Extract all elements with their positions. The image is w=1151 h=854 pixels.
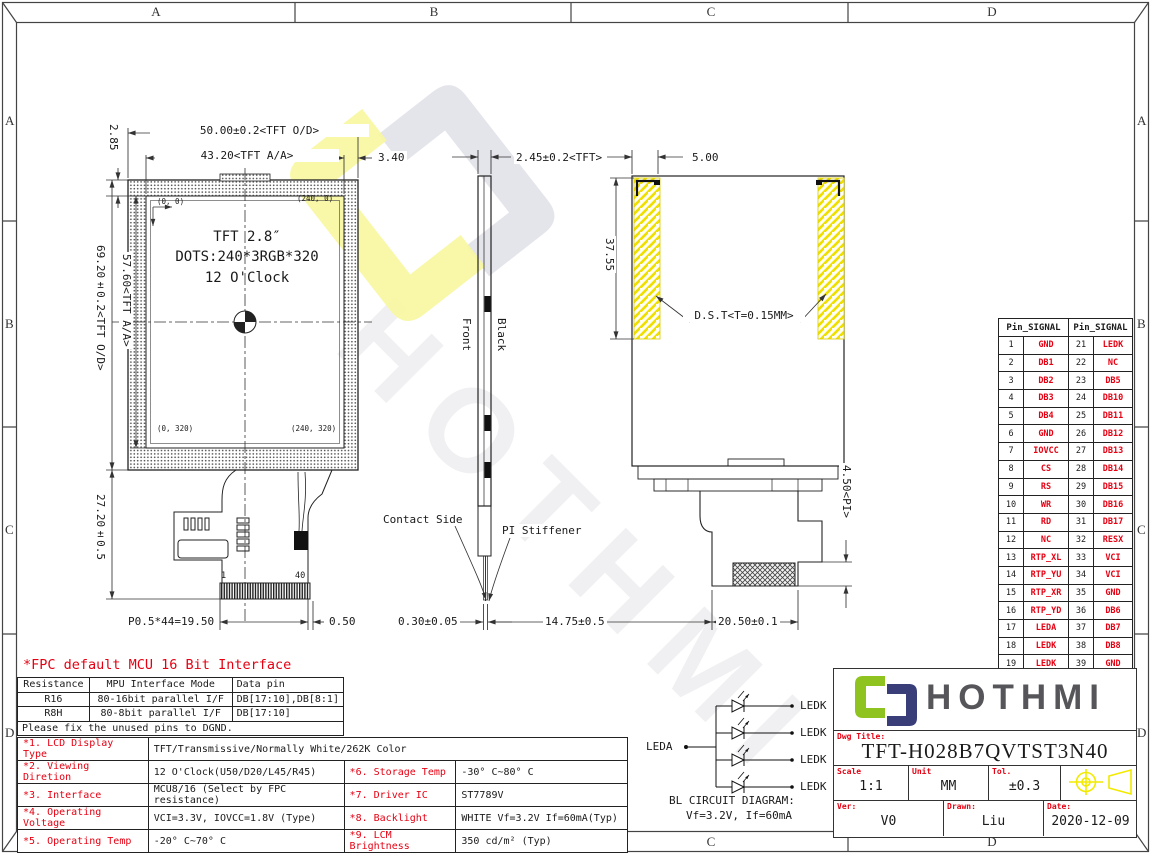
- date-value: 2020-12-09: [1044, 814, 1137, 829]
- pin-number-cell: 26: [1069, 425, 1094, 443]
- dim-aa-height: 57.60<TFT A/A>: [119, 252, 133, 349]
- label-leda: LEDA: [644, 740, 675, 753]
- zone-top-b: B: [404, 4, 464, 20]
- pin-signal-cell: NC: [1094, 354, 1133, 372]
- title-block: HOTHMI Dwg Title: TFT-H028B7QVTST3N40 Sc…: [833, 668, 1137, 838]
- panel-dots-text: DOTS:240*3RGB*320: [167, 249, 327, 265]
- dim-tape-width: 5.00: [690, 151, 721, 164]
- label-ledk-1: LEDK: [798, 699, 829, 712]
- resistance-table-row: R1680-16bit parallel I/FDB[17:10],DB[8:1…: [18, 692, 344, 707]
- label-contact-side: Contact Side: [381, 513, 464, 526]
- zone-right-c: C: [1137, 522, 1146, 538]
- pin-signal-cell: GND: [1024, 425, 1069, 443]
- zone-left-c: C: [5, 522, 14, 538]
- dwg-title: TFT-H028B7QVTST3N40: [834, 739, 1136, 764]
- spec-label-cell: *8. Backlight: [344, 807, 456, 830]
- resistance-cell: 80-8bit parallel I/F: [89, 707, 232, 722]
- pin-number-cell: 22: [1069, 354, 1094, 372]
- label-black-side: Black: [494, 316, 508, 353]
- dim-od-height: 69.20±0.2<TFT O/D>: [93, 243, 107, 373]
- spec-value-cell: WHITE Vf=3.2V If=60mA(Typ): [456, 807, 628, 830]
- label-ledk-4: LEDK: [798, 780, 829, 793]
- resistance-table: Resistance MPU Interface Mode Data pin R…: [17, 677, 344, 736]
- spec-table-row: *5. Operating Temp-20° C~70° C*9. LCM Br…: [18, 830, 628, 853]
- pin-table-row: 5DB425DB11: [999, 407, 1133, 425]
- spec-label-1: *1. LCD Display Type: [18, 738, 149, 761]
- pin-signal-cell: DB10: [1094, 390, 1133, 408]
- coord-top-right: (240, 0): [296, 194, 334, 203]
- pin-table-row: 9RS29DB15: [999, 478, 1133, 496]
- drawn-label: Drawn:: [947, 802, 976, 811]
- pin-table-row: 2DB122NC: [999, 354, 1133, 372]
- resistance-cell: R8H: [18, 707, 90, 722]
- spec-value-cell: 350 cd/m² (Typ): [456, 830, 628, 853]
- title-block-title-row: Dwg Title: TFT-H028B7QVTST3N40: [834, 730, 1136, 765]
- pin-signal-cell: CS: [1024, 460, 1069, 478]
- pin-table-row: 12NC32RESX: [999, 531, 1133, 549]
- pin-number-cell: 16: [999, 602, 1024, 620]
- pin-signal-cell: NC: [1024, 531, 1069, 549]
- resistance-cell: 80-16bit parallel I/F: [89, 692, 232, 707]
- pin-first-label: 1: [220, 571, 227, 581]
- brand-name: HOTHMI: [926, 678, 1106, 718]
- pin-table-row: 17LEDA37DB7: [999, 620, 1133, 638]
- spec-label-cell: *3. Interface: [18, 784, 149, 807]
- label-front-side: Front: [459, 316, 473, 353]
- spec-value-cell: MCU8/16 (Select by FPC resistance): [148, 784, 344, 807]
- pin-number-cell: 30: [1069, 496, 1094, 514]
- drawn-value: Liu: [944, 814, 1043, 829]
- pin-signal-cell: VCI: [1094, 549, 1133, 567]
- zone-right-b: B: [1137, 316, 1146, 332]
- zone-top-c: C: [681, 4, 741, 20]
- pin-number-cell: 9: [999, 478, 1024, 496]
- pin-number-cell: 13: [999, 549, 1024, 567]
- dim-fpc-thickness: 0.30±0.05: [396, 615, 460, 628]
- pin-table-row: 18LEDK38DB8: [999, 637, 1133, 655]
- pin-signal-cell: WR: [1024, 496, 1069, 514]
- bl-circuit-caption: BL CIRCUIT DIAGRAM:: [667, 794, 797, 807]
- panel-clock-text: 12 O'Clock: [175, 270, 319, 286]
- spec-value-cell: ST7789V: [456, 784, 628, 807]
- pin-signal-cell: DB2: [1024, 372, 1069, 390]
- pin-number-cell: 5: [999, 407, 1024, 425]
- date-cell: Date: 2020-12-09: [1044, 801, 1137, 836]
- pin-signal-cell: DB7: [1094, 620, 1133, 638]
- resistance-table-row: R8H80-8bit parallel I/FDB[17:10]: [18, 707, 344, 722]
- spec-label-cell: *4. Operating Voltage: [18, 807, 149, 830]
- spec-value-cell: 12 O'Clock(U50/D20/L45/R45): [148, 761, 344, 784]
- pin-number-cell: 32: [1069, 531, 1094, 549]
- pin-signal-cell: DB1: [1024, 354, 1069, 372]
- spec-table-row: *4. Operating VoltageVCI=3.3V, IOVCC=1.8…: [18, 807, 628, 830]
- pin-number-cell: 12: [999, 531, 1024, 549]
- spec-label-cell: *5. Operating Temp: [18, 830, 149, 853]
- pin-last-label: 40: [294, 571, 306, 581]
- pin-number-cell: 2: [999, 354, 1024, 372]
- dim-od-width: 50.00±0.2<TFT O/D>: [150, 124, 369, 137]
- pin-table-row: 10WR30DB16: [999, 496, 1133, 514]
- pin-table-row: 6GND26DB12: [999, 425, 1133, 443]
- pin-number-cell: 24: [1069, 390, 1094, 408]
- label-pi-stiffener: PI Stiffener: [500, 524, 583, 537]
- res-header-datapin: Data pin: [232, 678, 343, 693]
- pin-signal-cell: LEDA: [1024, 620, 1069, 638]
- pin-table-row: 14RTP_YU34VCI: [999, 566, 1133, 584]
- version-cell: Ver: V0: [834, 801, 944, 836]
- spec-table-row: *3. InterfaceMCU8/16 (Select by FPC resi…: [18, 784, 628, 807]
- unit-value: MM: [909, 779, 988, 794]
- pin-table-row: 1GND21LEDK: [999, 337, 1133, 355]
- pin-signal-cell: DB15: [1094, 478, 1133, 496]
- res-header-resistance: Resistance: [18, 678, 90, 693]
- pin-number-cell: 15: [999, 584, 1024, 602]
- pin-table-header-left: Pin_SIGNAL: [999, 319, 1069, 337]
- dim-tft-thickness: 2.45±0.2<TFT>: [514, 151, 604, 164]
- pin-signal-cell: RTP_YU: [1024, 566, 1069, 584]
- pin-signal-cell: DB3: [1024, 390, 1069, 408]
- unit-label: Unit: [912, 767, 931, 776]
- pin-signal-cell: RTP_YD: [1024, 602, 1069, 620]
- spec-label-cell: *2. Viewing Diretion: [18, 761, 149, 784]
- pin-table-row: 8CS28DB14: [999, 460, 1133, 478]
- label-dst-tape: D.S.T<T=0.15MM>: [683, 309, 805, 322]
- scale-cell: Scale 1:1: [834, 766, 909, 800]
- resistance-cell: R16: [18, 692, 90, 707]
- panel-size-text: TFT 2.8″: [175, 229, 319, 245]
- zone-bottom-c: C: [681, 834, 741, 850]
- fpc-interface-note: *FPC default MCU 16 Bit Interface: [21, 657, 293, 673]
- pin-number-cell: 25: [1069, 407, 1094, 425]
- pin-number-cell: 7: [999, 443, 1024, 461]
- pin-table-header-right: Pin_SIGNAL: [1069, 319, 1133, 337]
- pin-number-cell: 6: [999, 425, 1024, 443]
- drawing-sheet: HOTHMI: [0, 0, 1151, 854]
- label-ledk-2: LEDK: [798, 726, 829, 739]
- pin-number-cell: 33: [1069, 549, 1094, 567]
- resistance-table-note: Please fix the unused pins to DGND.: [18, 721, 344, 736]
- pin-table: Pin_SIGNAL Pin_SIGNAL 1GND21LEDK2DB122NC…: [998, 318, 1133, 691]
- spec-label-cell: *9. LCM Brightness: [344, 830, 456, 853]
- bl-circuit-spec: Vf=3.2V, If=60mA: [684, 809, 794, 822]
- version-label: Ver:: [837, 802, 856, 811]
- pin-signal-cell: DB16: [1094, 496, 1133, 514]
- pin-number-cell: 37: [1069, 620, 1094, 638]
- pin-signal-cell: DB14: [1094, 460, 1133, 478]
- pin-table-row: 3DB223DB5: [999, 372, 1133, 390]
- coord-bottom-left: (0, 320): [156, 424, 194, 433]
- date-label: Date:: [1047, 802, 1071, 811]
- zone-top-a: A: [126, 4, 186, 20]
- pin-signal-cell: DB8: [1094, 637, 1133, 655]
- spec-value-cell: -30° C~80° C: [456, 761, 628, 784]
- pin-signal-cell: DB17: [1094, 513, 1133, 531]
- pin-number-cell: 4: [999, 390, 1024, 408]
- pin-table-body: 1GND21LEDK2DB122NC3DB223DB54DB324DB105DB…: [999, 337, 1133, 691]
- pin-table-row: 13RTP_XL33VCI: [999, 549, 1133, 567]
- spec-value-1: TFT/Transmissive/Normally White/262K Col…: [148, 738, 627, 761]
- pin-number-cell: 35: [1069, 584, 1094, 602]
- pin-number-cell: 38: [1069, 637, 1094, 655]
- dim-pin-pitch: P0.5*44=19.50: [126, 615, 216, 628]
- pin-signal-cell: RTP_XR: [1024, 584, 1069, 602]
- pin-signal-cell: GND: [1024, 337, 1069, 355]
- pin-signal-cell: DB12: [1094, 425, 1133, 443]
- pin-signal-cell: LEDK: [1094, 337, 1133, 355]
- bl-circuit-drawing: [684, 691, 794, 793]
- spec-table-row: *2. Viewing Diretion12 O'Clock(U50/D20/L…: [18, 761, 628, 784]
- pin-number-cell: 29: [1069, 478, 1094, 496]
- unit-cell: Unit MM: [909, 766, 989, 800]
- pin-number-cell: 23: [1069, 372, 1094, 390]
- resistance-cell: DB[17:10],DB[8:1]: [232, 692, 343, 707]
- spec-value-cell: -20° C~70° C: [148, 830, 344, 853]
- projection-symbol-cell: [1061, 766, 1137, 800]
- coord-bottom-right: (240, 320): [290, 424, 337, 433]
- dim-pi-region: 4.50<PI>: [839, 463, 853, 520]
- pin-number-cell: 10: [999, 496, 1024, 514]
- pin-signal-cell: DB11: [1094, 407, 1133, 425]
- pin-signal-cell: VCI: [1094, 566, 1133, 584]
- pin-table-row: 4DB324DB10: [999, 390, 1133, 408]
- scale-value: 1:1: [834, 779, 908, 794]
- spec-table: *1. LCD Display Type TFT/Transmissive/No…: [17, 737, 628, 853]
- pin-table-row: 7IOVCC27DB13: [999, 443, 1133, 461]
- title-block-logo-row: HOTHMI: [834, 669, 1136, 730]
- dim-fpc-offset: 14.75±0.5: [543, 615, 607, 628]
- pin-number-cell: 31: [1069, 513, 1094, 531]
- title-block-info-row: Ver: V0 Drawn: Liu Date: 2020-12-09: [834, 800, 1136, 836]
- zone-left-d: D: [5, 725, 14, 741]
- pin-number-cell: 3: [999, 372, 1024, 390]
- pin-table-row: 11RD31DB17: [999, 513, 1133, 531]
- tolerance-value: ±0.3: [989, 779, 1060, 794]
- zone-left-b: B: [5, 316, 14, 332]
- pin-signal-cell: RTP_XL: [1024, 549, 1069, 567]
- pin-number-cell: 14: [999, 566, 1024, 584]
- pin-signal-cell: GND: [1094, 584, 1133, 602]
- back-view-drawing: [632, 176, 844, 586]
- zone-left-a: A: [5, 113, 14, 129]
- pin-number-cell: 28: [1069, 460, 1094, 478]
- tolerance-cell: Tol. ±0.3: [989, 766, 1061, 800]
- pin-number-cell: 11: [999, 513, 1024, 531]
- pin-signal-cell: DB4: [1024, 407, 1069, 425]
- scale-label: Scale: [837, 767, 861, 776]
- pin-signal-cell: RESX: [1094, 531, 1133, 549]
- pin-number-cell: 18: [999, 637, 1024, 655]
- pin-signal-cell: IOVCC: [1024, 443, 1069, 461]
- pin-signal-cell: RS: [1024, 478, 1069, 496]
- spec-value-cell: VCI=3.3V, IOVCC=1.8V (Type): [148, 807, 344, 830]
- zone-right-d: D: [1137, 725, 1146, 741]
- dim-connector-width: 20.50±0.1: [716, 615, 780, 628]
- pin-number-cell: 27: [1069, 443, 1094, 461]
- spec-table-body: *1. LCD Display Type TFT/Transmissive/No…: [18, 738, 628, 853]
- version-value: V0: [834, 814, 943, 829]
- zone-top-d: D: [962, 4, 1022, 20]
- dim-tail-length: 27.20±0.5: [93, 492, 107, 562]
- dim-side-margin: 3.40: [376, 151, 407, 164]
- drawn-cell: Drawn: Liu: [944, 801, 1044, 836]
- pin-number-cell: 8: [999, 460, 1024, 478]
- pin-number-cell: 21: [1069, 337, 1094, 355]
- tolerance-label: Tol.: [992, 767, 1011, 776]
- first-angle-projection-icon: [1061, 766, 1137, 799]
- dim-pin-offset: 0.50: [327, 615, 358, 628]
- label-ledk-3: LEDK: [798, 753, 829, 766]
- pin-table-row: 15RTP_XR35GND: [999, 584, 1133, 602]
- spec-label-cell: *6. Storage Temp: [344, 761, 456, 784]
- dim-aa-width: 43.20<TFT A/A>: [155, 149, 339, 162]
- res-header-mode: MPU Interface Mode: [89, 678, 232, 693]
- hothmi-logo-icon: [851, 672, 921, 728]
- pin-signal-cell: DB13: [1094, 443, 1133, 461]
- pin-signal-cell: DB5: [1094, 372, 1133, 390]
- pin-number-cell: 1: [999, 337, 1024, 355]
- zone-right-a: A: [1137, 113, 1146, 129]
- pin-signal-cell: DB6: [1094, 602, 1133, 620]
- pin-number-cell: 17: [999, 620, 1024, 638]
- spec-label-cell: *7. Driver IC: [344, 784, 456, 807]
- dim-tape-height: 37.55: [602, 236, 616, 273]
- pin-number-cell: 36: [1069, 602, 1094, 620]
- pin-signal-cell: LEDK: [1024, 637, 1069, 655]
- dim-top-margin: 2.85: [106, 122, 120, 153]
- resistance-cell: DB[17:10]: [232, 707, 343, 722]
- title-block-scale-row: Scale 1:1 Unit MM Tol. ±0.3: [834, 765, 1136, 800]
- resistance-table-body: R1680-16bit parallel I/FDB[17:10],DB[8:1…: [18, 692, 344, 721]
- pin-table-row: 16RTP_YD36DB6: [999, 602, 1133, 620]
- pin-signal-cell: RD: [1024, 513, 1069, 531]
- coord-top-left: (0, 0): [156, 197, 185, 206]
- pin-number-cell: 34: [1069, 566, 1094, 584]
